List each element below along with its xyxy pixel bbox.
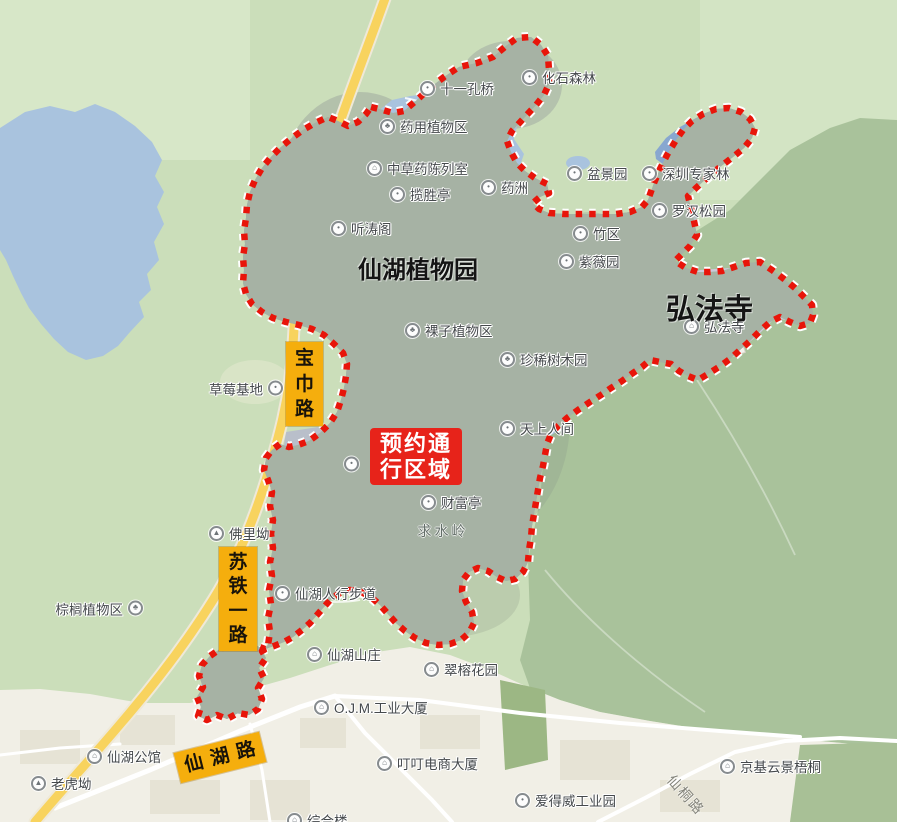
map-poi[interactable]: •爱得威工业园 <box>515 790 616 810</box>
map-poi[interactable]: •天上人间 <box>500 418 574 438</box>
poi-label: 综合楼 <box>307 810 348 822</box>
road-badge-char: 宝 <box>295 349 314 368</box>
map-poi[interactable]: ♣珍稀树木园 <box>500 349 588 369</box>
map-poi[interactable]: •化石森林 <box>522 67 596 87</box>
poi-label: 药用植物区 <box>400 116 468 136</box>
dot-icon: • <box>567 166 582 181</box>
road-badge-char: 巾 <box>295 375 314 394</box>
road-badge-char: 路 <box>228 626 247 645</box>
area-label: 仙湖植物园 <box>358 250 478 285</box>
map-poi[interactable]: ♣棕榈植物区 <box>128 601 143 616</box>
map-poi[interactable]: ♣药用植物区 <box>380 116 468 136</box>
building-icon: ⌂ <box>377 756 392 771</box>
reserve-badge-line: 行区域 <box>380 457 452 483</box>
tree-icon: ♣ <box>500 352 515 367</box>
dot-icon: • <box>275 586 290 601</box>
poi-label: 仙湖山庄 <box>327 644 381 664</box>
map-poi[interactable]: •十一孔桥 <box>420 78 494 98</box>
dot-icon: • <box>331 221 346 236</box>
map-poi[interactable]: ▲老虎坳 <box>31 773 92 793</box>
road-badge-char: 路 <box>234 740 257 763</box>
map-overlay: •十一孔桥•化石森林♣药用植物区⌂中草药陈列室•揽胜亭•药洲•听涛阁•盆景园•深… <box>0 0 897 822</box>
poi-label: 紫薇园 <box>579 251 620 271</box>
dot-icon: • <box>573 226 588 241</box>
poi-label: 叮叮电商大厦 <box>397 753 478 773</box>
road-badge-char: 苏 <box>228 553 247 572</box>
poi-label: 罗汉松园 <box>672 200 726 220</box>
building-icon: ⌂ <box>424 662 439 677</box>
poi-label: 财富亭 <box>441 492 482 512</box>
tree-icon: ♣ <box>128 601 143 616</box>
poi-label: 中草药陈列室 <box>387 158 468 178</box>
map-poi[interactable]: ⌂O.J.M.工业大厦 <box>314 697 428 717</box>
road-badge-char: 铁 <box>228 577 247 596</box>
poi-label: 盆景园 <box>587 163 628 183</box>
map-poi[interactable]: •草莓基地 <box>268 381 283 396</box>
poi-label: 棕榈植物区 <box>56 598 124 618</box>
poi-label: 珍稀树木园 <box>520 349 588 369</box>
dot-icon: • <box>268 381 283 396</box>
map-poi[interactable]: ♣裸子植物区 <box>405 320 493 340</box>
map-poi[interactable]: •紫薇园 <box>559 251 620 271</box>
road-name-label: 仙桐路 <box>663 770 710 819</box>
road-badge-char: 一 <box>228 602 247 621</box>
dot-icon: • <box>500 421 515 436</box>
poi-label: O.J.M.工业大厦 <box>334 697 428 717</box>
building-icon: ⌂ <box>87 749 102 764</box>
map-poi[interactable]: •药洲 <box>481 177 528 197</box>
dot-icon: • <box>642 166 657 181</box>
reserve-area-badge: 预约通行区域 <box>370 428 462 485</box>
dot-icon: • <box>652 203 667 218</box>
dot-icon: • <box>421 495 436 510</box>
poi-label: 化石森林 <box>542 67 596 87</box>
building-icon: ⌂ <box>307 647 322 662</box>
dot-icon: • <box>420 81 435 96</box>
map-poi[interactable]: ⌂仙湖山庄 <box>307 644 381 664</box>
map-poi[interactable]: •财富亭 <box>421 492 482 512</box>
poi-label: 仙湖人行步道 <box>295 583 376 603</box>
poi-label: 药洲 <box>501 177 528 197</box>
tree-icon: ♣ <box>405 323 420 338</box>
poi-label: 仙湖公馆 <box>107 746 161 766</box>
building-icon: ⌂ <box>367 161 382 176</box>
dot-icon: • <box>515 793 530 808</box>
poi-label: 草莓基地 <box>209 378 263 398</box>
building-icon: ⌂ <box>287 813 302 822</box>
road-badge-char: 路 <box>295 400 314 419</box>
poi-label: 裸子植物区 <box>425 320 493 340</box>
poi-label: 翠榕花园 <box>444 659 498 679</box>
map-poi[interactable]: •深圳专家林 <box>642 163 730 183</box>
poi-label: 老虎坳 <box>51 773 92 793</box>
map-poi[interactable]: •仙湖人行步道 <box>275 583 376 603</box>
mountain-icon: ▲ <box>31 776 46 791</box>
dot-icon: • <box>522 70 537 85</box>
map-poi[interactable]: ⌂中草药陈列室 <box>367 158 468 178</box>
map-canvas[interactable]: •十一孔桥•化石森林♣药用植物区⌂中草药陈列室•揽胜亭•药洲•听涛阁•盆景园•深… <box>0 0 897 822</box>
road-name-badge: 苏铁一路 <box>219 547 257 651</box>
poi-label: 听涛阁 <box>351 218 392 238</box>
road-name-badge: 仙湖路 <box>174 732 267 783</box>
poi-label: 竹区 <box>593 223 620 243</box>
map-poi[interactable]: •揽胜亭 <box>390 184 451 204</box>
building-icon: ⌂ <box>720 759 735 774</box>
poi-label: 佛里坳 <box>229 523 270 543</box>
reserve-badge-line: 预约通 <box>380 431 452 457</box>
dot-icon: • <box>390 187 405 202</box>
area-label: 弘法寺 <box>666 286 753 328</box>
poi-label: 京基云景梧桐 <box>740 756 821 776</box>
poi-label: 十一孔桥 <box>440 78 494 98</box>
poi-label: 深圳专家林 <box>662 163 730 183</box>
building-icon: ⌂ <box>314 700 329 715</box>
map-poi[interactable]: •罗汉松园 <box>652 200 726 220</box>
terrain-label: 求水岭 <box>418 521 469 541</box>
road-name-badge: 宝巾路 <box>286 342 323 426</box>
map-poi[interactable]: •盆景园 <box>567 163 628 183</box>
map-poi[interactable]: • <box>344 457 359 472</box>
road-badge-char: 湖 <box>208 746 231 769</box>
road-badge-char: 仙 <box>183 752 206 775</box>
map-poi[interactable]: •听涛阁 <box>331 218 392 238</box>
map-poi[interactable]: ⌂京基云景梧桐 <box>720 756 821 776</box>
map-poi[interactable]: ⌂仙湖公馆 <box>87 746 161 766</box>
map-poi[interactable]: ⌂翠榕花园 <box>424 659 498 679</box>
map-poi[interactable]: ⌂叮叮电商大厦 <box>377 753 478 773</box>
map-poi[interactable]: ▲佛里坳 <box>209 523 270 543</box>
dot-icon: • <box>481 180 496 195</box>
map-poi[interactable]: ⌂综合楼 <box>287 810 348 822</box>
tree-icon: ♣ <box>380 119 395 134</box>
mountain-icon: ▲ <box>209 526 224 541</box>
map-poi[interactable]: •竹区 <box>573 223 620 243</box>
dot-icon: • <box>344 457 359 472</box>
poi-label: 揽胜亭 <box>410 184 451 204</box>
poi-label: 天上人间 <box>520 418 574 438</box>
dot-icon: • <box>559 254 574 269</box>
poi-label: 爱得威工业园 <box>535 790 616 810</box>
